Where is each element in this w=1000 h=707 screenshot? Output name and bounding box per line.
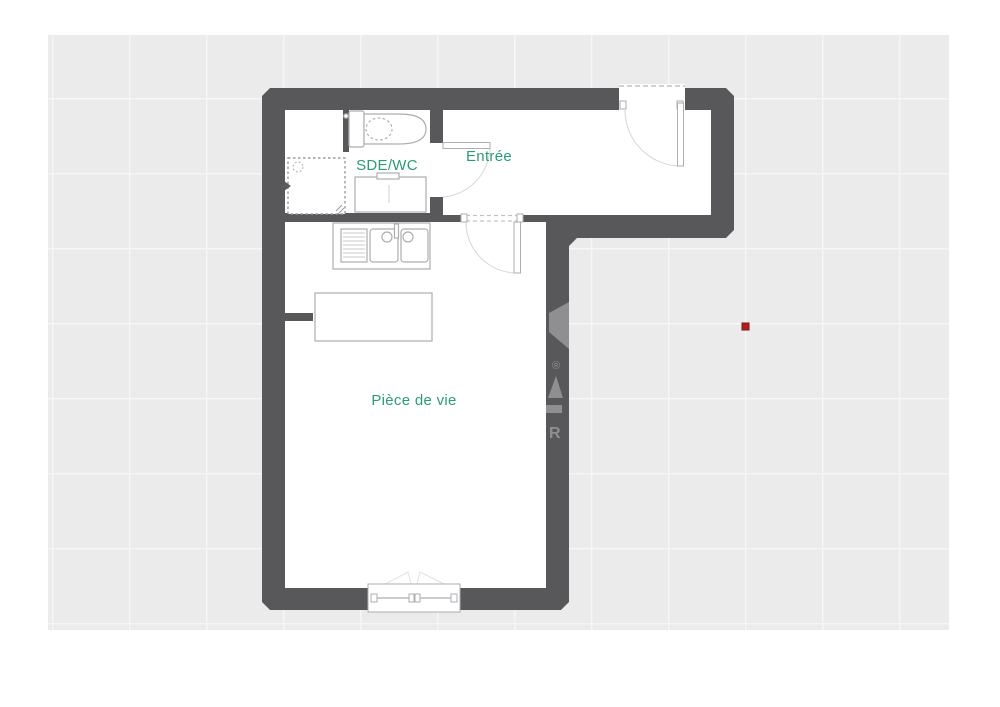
room-label-piece-de-vie: Pièce de vie — [371, 392, 456, 409]
toilet — [344, 111, 426, 147]
door-hinge-mark — [517, 214, 523, 222]
island-counter — [315, 293, 432, 341]
washbasin-unit — [355, 173, 426, 212]
room-label-sde-wc: SDE/WC — [356, 157, 418, 174]
door-leaf — [514, 222, 521, 273]
faucet-handle — [382, 232, 392, 242]
floorplan-image: ® R SDE/WC Entrée Pièce de vie — [0, 0, 1000, 707]
faucet — [395, 224, 399, 238]
door-hinge-mark — [620, 101, 626, 109]
door-leaf — [678, 103, 684, 166]
kitchen-double-sink — [333, 223, 430, 269]
door-hinge-mark — [461, 214, 467, 222]
floorplan-drawing: ® R SDE/WC Entrée Pièce de vie — [0, 0, 1000, 707]
watermark-registered: ® — [552, 360, 560, 372]
shower — [281, 158, 345, 214]
faucet-handle — [403, 232, 413, 242]
wall-stub-living — [285, 313, 313, 321]
red-marker-dot — [742, 323, 749, 330]
watermark-letter: R — [549, 425, 561, 442]
room-label-entree: Entrée — [466, 148, 512, 165]
